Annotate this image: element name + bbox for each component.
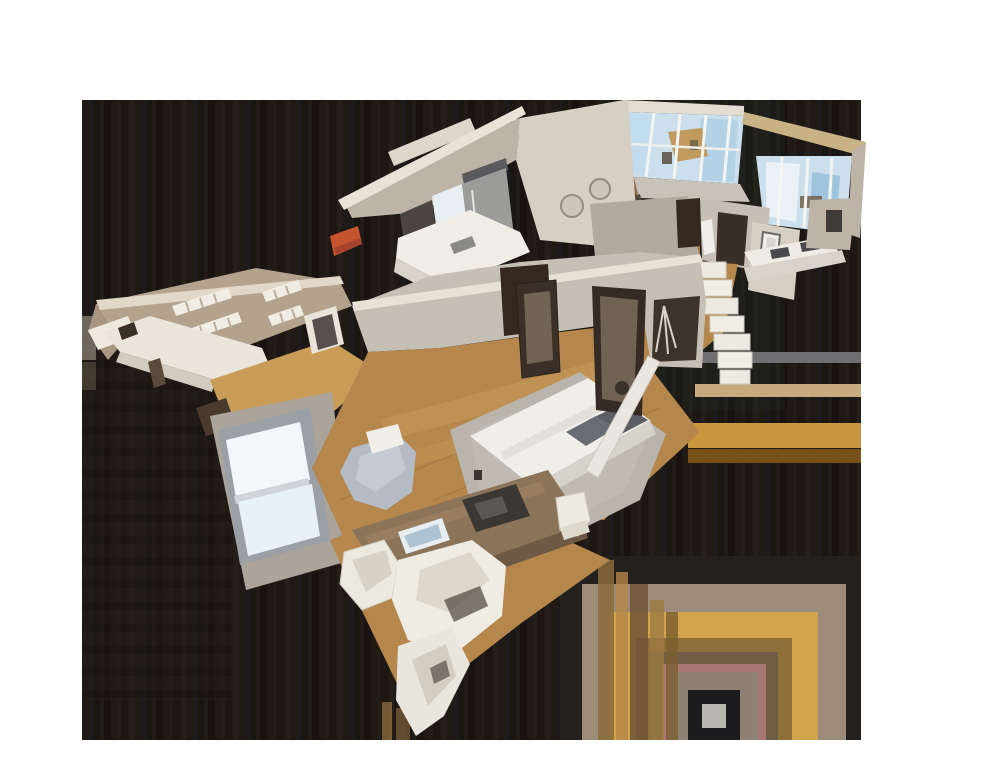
smear-left-tan bbox=[82, 362, 96, 390]
smear-stripe-gold bbox=[688, 423, 861, 448]
hall-doorway-1 bbox=[676, 198, 702, 248]
smear-vstripe-tip-1 bbox=[382, 702, 392, 740]
bed-leg-1 bbox=[474, 470, 482, 480]
screenshot-root bbox=[0, 0, 994, 779]
smear-band-core bbox=[702, 704, 726, 728]
glass-dark-bit-1 bbox=[662, 152, 672, 164]
glass-right-white-streak bbox=[766, 162, 800, 222]
hall-dark-niche bbox=[826, 210, 842, 232]
shelf-step-3 bbox=[704, 298, 738, 314]
round-mirror-2 bbox=[590, 179, 610, 199]
round-mirror-1 bbox=[561, 195, 583, 217]
smear-vstripe-3 bbox=[630, 584, 648, 740]
smear-vstripe-1 bbox=[598, 560, 614, 740]
backdrop-horizontal-stripes bbox=[82, 340, 232, 700]
hall-doorway-2 bbox=[716, 212, 748, 266]
shelf-step-4 bbox=[710, 316, 744, 332]
shelf-step-6 bbox=[718, 352, 752, 368]
smear-stripe-brown bbox=[688, 449, 861, 463]
mirror-vase-reflection bbox=[615, 381, 629, 395]
shelf-step-5 bbox=[714, 334, 750, 350]
smear-vstripe-5 bbox=[666, 612, 678, 740]
door-leaf-reflection bbox=[524, 291, 553, 364]
dollhouse-3d-view[interactable] bbox=[0, 0, 994, 779]
shelf-step-7 bbox=[720, 370, 750, 384]
smear-vstripe-2 bbox=[616, 572, 628, 740]
smear-stripe-tan bbox=[695, 384, 861, 397]
smear-vstripe-4 bbox=[650, 600, 664, 740]
